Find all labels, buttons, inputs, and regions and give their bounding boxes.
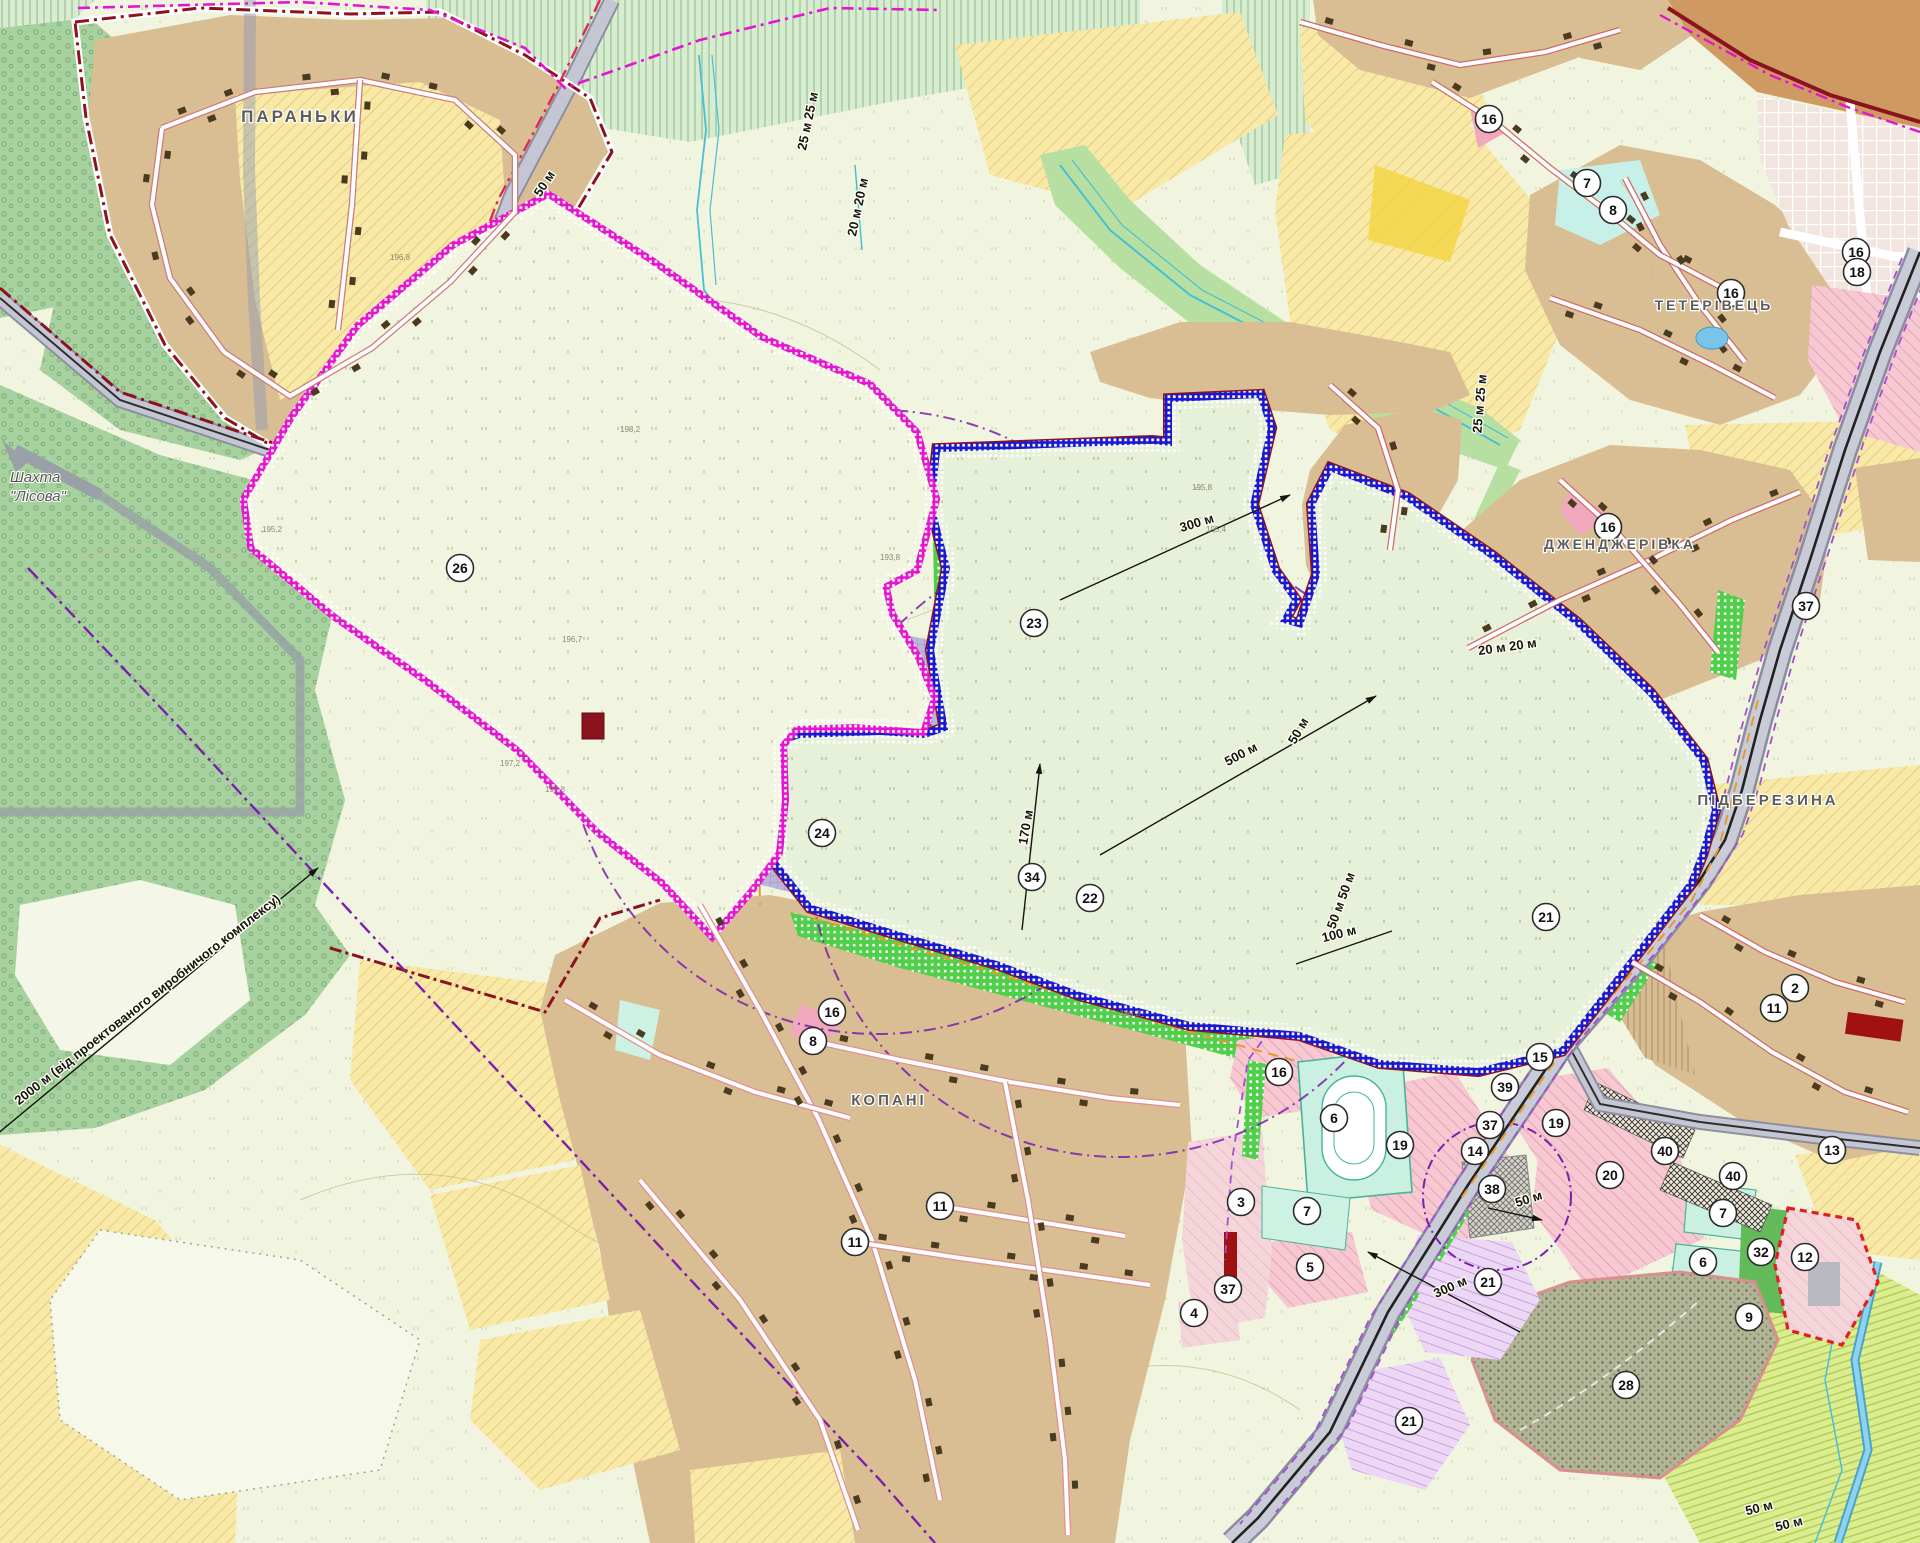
- building: [164, 150, 171, 159]
- building: [1091, 1237, 1100, 1244]
- zone-marker-16: 16: [1476, 106, 1503, 133]
- mine-label: Шахта: [10, 469, 60, 486]
- svg-text:28: 28: [1618, 1377, 1634, 1393]
- svg-text:16: 16: [1600, 519, 1616, 535]
- svg-text:21: 21: [1401, 1413, 1417, 1429]
- place-label-pidberezyna: ПІДБЕРЕЗИНА: [1697, 792, 1838, 809]
- spot-height: 197,2: [500, 759, 521, 768]
- zone-marker-37: 37: [1477, 1112, 1504, 1139]
- zone-marker-7: 7: [1574, 170, 1601, 197]
- svg-text:7: 7: [1719, 1205, 1727, 1221]
- svg-text:6: 6: [1699, 1254, 1707, 1270]
- svg-text:22: 22: [1082, 890, 1098, 906]
- svg-text:16: 16: [1271, 1064, 1287, 1080]
- zone-marker-19: 19: [1387, 1132, 1414, 1159]
- spot-height: 196,7: [562, 635, 583, 644]
- building: [361, 151, 367, 159]
- building: [1029, 1274, 1038, 1281]
- spot-height: 198,2: [620, 425, 641, 434]
- building: [1072, 1481, 1078, 1489]
- zone-marker-5: 5: [1297, 1254, 1324, 1281]
- svg-text:5: 5: [1306, 1259, 1314, 1275]
- building: [1483, 48, 1492, 55]
- svg-text:24: 24: [814, 825, 830, 841]
- svg-text:12: 12: [1797, 1249, 1813, 1265]
- zone-marker-37: 37: [1215, 1276, 1242, 1303]
- spot-height: 195,8: [1192, 483, 1213, 492]
- svg-text:21: 21: [1538, 909, 1554, 925]
- spot-height: 197,8: [545, 785, 566, 794]
- svg-text:32: 32: [1753, 1244, 1769, 1260]
- building: [341, 175, 347, 183]
- building: [1380, 524, 1387, 533]
- zone-marker-3: 3: [1228, 1189, 1255, 1216]
- zone-marker-11: 11: [842, 1229, 869, 1256]
- zone-marker-39: 39: [1492, 1074, 1519, 1101]
- svg-text:7: 7: [1303, 1203, 1311, 1219]
- zone-marker-15: 15: [1527, 1044, 1554, 1071]
- building: [931, 1242, 940, 1249]
- zone-marker-24: 24: [809, 820, 836, 847]
- building: [1057, 1078, 1066, 1085]
- building: [364, 101, 370, 109]
- zone-marker-2: 2: [1782, 975, 1809, 1002]
- svg-text:16: 16: [1848, 244, 1864, 260]
- zone-marker-22: 22: [1077, 885, 1104, 912]
- svg-text:6: 6: [1330, 1110, 1338, 1126]
- zone-marker-7: 7: [1294, 1198, 1321, 1225]
- building: [1050, 1433, 1057, 1442]
- svg-text:11: 11: [848, 1234, 863, 1250]
- zone-marker-40: 40: [1720, 1163, 1747, 1190]
- building: [1130, 1088, 1139, 1095]
- building: [1124, 1269, 1133, 1276]
- zone-marker-8: 8: [1600, 197, 1627, 224]
- building: [878, 1234, 887, 1241]
- svg-text:40: 40: [1657, 1143, 1673, 1159]
- zone-marker-4: 4: [1181, 1300, 1208, 1327]
- svg-text:7: 7: [1583, 175, 1591, 191]
- svg-text:16: 16: [824, 1004, 840, 1020]
- zone-marker-7: 7: [1710, 1200, 1737, 1227]
- spot-height: 195,2: [262, 525, 283, 534]
- zone-marker-20: 20: [1597, 1162, 1624, 1189]
- zone-marker-21: 21: [1475, 1269, 1502, 1296]
- svg-text:14: 14: [1467, 1143, 1483, 1159]
- svg-text:37: 37: [1798, 598, 1814, 614]
- zoning-map-canvas: 50 м25 м 25 м20 м 20 м25 м 25 м20 м 20 м…: [0, 0, 1920, 1543]
- zone-marker-8: 8: [800, 1028, 827, 1055]
- building: [1007, 1253, 1016, 1260]
- zone-marker-16: 16: [819, 999, 846, 1026]
- zone-marker-11: 11: [927, 1193, 954, 1220]
- building: [330, 89, 339, 96]
- svg-text:20: 20: [1602, 1167, 1618, 1183]
- spot-height: 193,8: [880, 553, 901, 562]
- zone-marker-21: 21: [1533, 904, 1560, 931]
- zone-marker-6: 6: [1321, 1105, 1348, 1132]
- svg-text:38: 38: [1484, 1181, 1500, 1197]
- svg-text:34: 34: [1024, 869, 1040, 885]
- spot-height: 196,8: [390, 253, 411, 262]
- svg-text:3: 3: [1237, 1194, 1245, 1210]
- svg-text:15: 15: [1532, 1049, 1548, 1065]
- svg-text:13: 13: [1824, 1142, 1840, 1158]
- building: [1058, 1359, 1065, 1368]
- svg-text:37: 37: [1220, 1281, 1236, 1297]
- zone-marker-32: 32: [1748, 1239, 1775, 1266]
- pond-teterivets: [1696, 327, 1728, 349]
- zone-marker-18: 18: [1844, 259, 1871, 286]
- zone-marker-26: 26: [447, 555, 474, 582]
- zone-marker-23: 23: [1021, 610, 1048, 637]
- zone-marker-34: 34: [1019, 864, 1046, 891]
- zone-marker-14: 14: [1462, 1138, 1489, 1165]
- zone-marker-11: 11: [1761, 995, 1788, 1022]
- zone-marker-28: 28: [1613, 1372, 1640, 1399]
- svg-text:2: 2: [1791, 980, 1799, 996]
- building: [349, 277, 356, 286]
- farm-building: [582, 713, 604, 739]
- zone-marker-19: 19: [1543, 1110, 1570, 1137]
- svg-text:19: 19: [1548, 1115, 1564, 1131]
- zone-marker-38: 38: [1479, 1176, 1506, 1203]
- svg-text:8: 8: [1609, 202, 1617, 218]
- building: [1047, 1278, 1054, 1287]
- spot-height: 195,4: [1206, 525, 1227, 534]
- building: [1401, 507, 1408, 516]
- svg-text:21: 21: [1480, 1274, 1496, 1290]
- svg-text:26: 26: [452, 560, 468, 576]
- building: [1079, 1263, 1088, 1270]
- svg-text:16: 16: [1481, 111, 1497, 127]
- building: [355, 227, 362, 236]
- building: [1064, 1407, 1071, 1416]
- zone-marker-16: 16: [1266, 1059, 1293, 1086]
- svg-text:8: 8: [809, 1033, 817, 1049]
- place-label-teterivets: ТЕТЕРІВЕЦЬ: [1655, 297, 1774, 313]
- mine-label: "Лісова": [10, 488, 67, 505]
- zone-marker-40: 40: [1652, 1138, 1679, 1165]
- svg-text:37: 37: [1482, 1117, 1498, 1133]
- zone-marker-6: 6: [1690, 1249, 1717, 1276]
- place-label-kopani: КОПАНІ: [851, 1092, 926, 1109]
- svg-text:11: 11: [933, 1198, 948, 1214]
- building: [1033, 1309, 1040, 1318]
- zone-6-stadium: [1298, 1050, 1412, 1202]
- svg-text:18: 18: [1849, 264, 1865, 280]
- building: [1038, 1222, 1045, 1231]
- building: [302, 74, 311, 81]
- zone-marker-13: 13: [1819, 1137, 1846, 1164]
- building: [328, 300, 335, 309]
- building: [1079, 1099, 1088, 1106]
- svg-text:4: 4: [1190, 1305, 1198, 1321]
- svg-text:19: 19: [1392, 1137, 1408, 1153]
- building: [902, 1255, 911, 1262]
- building: [143, 174, 150, 183]
- svg-text:39: 39: [1497, 1079, 1513, 1095]
- zone-marker-9: 9: [1736, 1304, 1763, 1331]
- building: [1065, 1214, 1074, 1221]
- building: [959, 1215, 968, 1222]
- svg-text:11: 11: [1767, 1000, 1782, 1016]
- zone-marker-12: 12: [1792, 1244, 1819, 1271]
- svg-text:9: 9: [1745, 1309, 1753, 1325]
- place-label-dzhendzherivka: ДЖЕНДЖЕРІВКА: [1544, 536, 1696, 552]
- zone-marker-21: 21: [1396, 1408, 1423, 1435]
- building: [987, 1202, 996, 1209]
- zone-marker-37: 37: [1793, 593, 1820, 620]
- spot-height: 196,3: [1120, 1009, 1141, 1018]
- svg-text:23: 23: [1026, 615, 1042, 631]
- svg-text:40: 40: [1725, 1168, 1741, 1184]
- place-label-paranky: ПАРАНЬКИ: [241, 107, 359, 126]
